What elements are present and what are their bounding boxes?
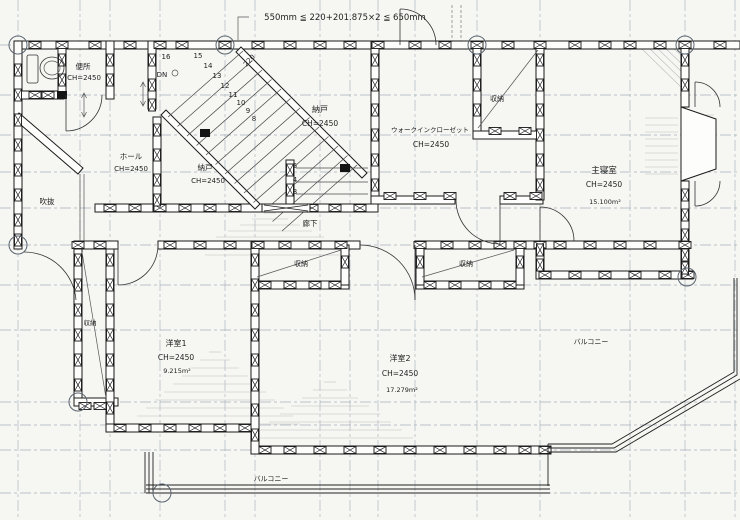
room-ch-hall: CH=2450 bbox=[114, 165, 148, 173]
room-label-balcony-bottom: バルコニー bbox=[254, 475, 289, 483]
wall-post bbox=[372, 154, 379, 166]
wall-post bbox=[56, 42, 68, 49]
wall-post bbox=[179, 205, 191, 212]
wall-post bbox=[107, 354, 114, 366]
wall-post bbox=[29, 42, 41, 49]
wall-post-solid bbox=[340, 164, 350, 172]
stair-step-number: 3 bbox=[293, 188, 297, 196]
wall-post bbox=[644, 242, 656, 249]
floor-plan-drawing: 550mm ≦ 220+201.875×2 ≦ 650mm 220 便所 CH=… bbox=[0, 0, 740, 520]
wall-post bbox=[314, 447, 326, 454]
wall-post bbox=[517, 256, 524, 268]
wall-post bbox=[599, 272, 611, 279]
room-ch-master-bedroom: CH=2450 bbox=[586, 180, 622, 189]
wall-post bbox=[614, 242, 626, 249]
wall-post bbox=[714, 42, 726, 49]
wall-post bbox=[89, 42, 101, 49]
wall-post bbox=[72, 242, 84, 249]
wall-post bbox=[569, 272, 581, 279]
wall-post bbox=[537, 104, 544, 116]
wall-post bbox=[344, 447, 356, 454]
stair-step-number: 11 bbox=[229, 91, 238, 99]
room-label-storage-left: 納戸 bbox=[198, 162, 213, 172]
wall-post bbox=[75, 279, 82, 291]
stair-step-number: 5 bbox=[293, 162, 297, 170]
wall-post bbox=[474, 79, 481, 91]
wall-post bbox=[309, 282, 321, 289]
stair-step-number: 15 bbox=[194, 52, 203, 60]
wall-post bbox=[107, 379, 114, 391]
wall-post bbox=[59, 54, 66, 66]
wall-post bbox=[502, 42, 514, 49]
room-label-balcony-right: バルコニー bbox=[574, 338, 609, 346]
wall-post bbox=[354, 205, 366, 212]
wall-post bbox=[514, 242, 526, 249]
wall-post bbox=[372, 104, 379, 116]
wall-post bbox=[494, 447, 506, 454]
wall-post bbox=[149, 54, 156, 66]
stair-step-number: 4 bbox=[293, 176, 298, 184]
stair-step-number: 16 bbox=[162, 53, 171, 61]
wall-post bbox=[537, 79, 544, 91]
stair-step-number: 12 bbox=[221, 82, 230, 90]
wall-post bbox=[154, 174, 161, 186]
wall-post bbox=[114, 425, 126, 432]
wall-post bbox=[252, 242, 264, 249]
wall-post bbox=[417, 256, 424, 268]
room-label-walk-in-closet: ウォークインクローゼット bbox=[391, 125, 469, 134]
wall-post bbox=[252, 429, 259, 441]
wall-post bbox=[107, 254, 114, 266]
wall-post bbox=[504, 282, 516, 289]
wall-post bbox=[139, 425, 151, 432]
wall-post bbox=[284, 282, 296, 289]
wall-post bbox=[629, 272, 641, 279]
wall-post bbox=[189, 425, 201, 432]
wall-post bbox=[154, 194, 161, 206]
wall-post bbox=[229, 205, 241, 212]
wall-post bbox=[519, 447, 531, 454]
room-ch-western-room-2: CH=2450 bbox=[382, 369, 418, 378]
wall-post bbox=[409, 42, 421, 49]
room-label-toilet: 便所 bbox=[76, 61, 91, 71]
wall-post bbox=[15, 114, 22, 126]
room-label-western-room-2: 洋室2 bbox=[389, 353, 410, 363]
wall-post bbox=[94, 403, 106, 410]
wall-post bbox=[682, 189, 689, 201]
wall-post-solid bbox=[200, 129, 210, 137]
room-label-master-bedroom: 主寝室 bbox=[591, 165, 617, 176]
wall-post bbox=[537, 259, 544, 271]
wall-post bbox=[444, 193, 456, 200]
sliding-door-symbol bbox=[262, 204, 310, 212]
wall-post bbox=[679, 242, 691, 249]
wall-post bbox=[15, 89, 22, 101]
wall-post bbox=[154, 124, 161, 136]
wall-post bbox=[75, 379, 82, 391]
wall-post bbox=[682, 54, 689, 66]
wall-post bbox=[129, 205, 141, 212]
wall-post bbox=[530, 193, 542, 200]
wall-post bbox=[59, 74, 66, 86]
wall-post bbox=[79, 403, 91, 410]
wall-post bbox=[107, 304, 114, 316]
wall-post bbox=[124, 42, 136, 49]
wall-post bbox=[329, 282, 341, 289]
wall-post bbox=[489, 128, 501, 135]
wall-post bbox=[176, 42, 188, 49]
stair-step-number: 14 bbox=[204, 62, 213, 70]
wall-post bbox=[464, 447, 476, 454]
wall-post bbox=[414, 193, 426, 200]
wall-post bbox=[372, 54, 379, 66]
room-label-storage-top: 納戸 bbox=[312, 104, 328, 114]
wall-post bbox=[239, 425, 251, 432]
room-ch-western-room-1: CH=2450 bbox=[158, 353, 194, 362]
wall-post bbox=[107, 54, 114, 66]
room-label-closet-corridor-left: 収納 bbox=[294, 259, 308, 268]
wall-post bbox=[659, 272, 671, 279]
wall-post bbox=[682, 79, 689, 91]
wall-post bbox=[584, 242, 596, 249]
wall-post bbox=[682, 209, 689, 221]
wall-post bbox=[434, 447, 446, 454]
stair-step-number: 8 bbox=[252, 115, 256, 123]
stair-step-number: 9 bbox=[246, 107, 250, 115]
wall-post bbox=[404, 447, 416, 454]
wall-post bbox=[154, 42, 166, 49]
wall-post bbox=[344, 42, 356, 49]
wall-post bbox=[252, 329, 259, 341]
wall-post bbox=[329, 205, 341, 212]
wall-post bbox=[94, 242, 106, 249]
wall-post bbox=[682, 229, 689, 241]
wall-post bbox=[252, 304, 259, 316]
wall-post bbox=[252, 404, 259, 416]
wall-post bbox=[537, 154, 544, 166]
wall-post bbox=[314, 42, 326, 49]
wall-post bbox=[374, 447, 386, 454]
stair-dn-label: DN bbox=[157, 71, 168, 79]
wall-post bbox=[335, 242, 347, 249]
wall-post bbox=[164, 425, 176, 432]
wall-post bbox=[252, 254, 259, 266]
wall-post bbox=[29, 92, 41, 99]
wall-post bbox=[537, 129, 544, 141]
wall-post bbox=[384, 193, 396, 200]
wall-post bbox=[414, 242, 426, 249]
wall-post bbox=[204, 205, 216, 212]
room-label-closet-west: 収納 bbox=[84, 318, 97, 327]
room-ch-walk-in-closet: CH=2450 bbox=[413, 140, 449, 149]
wall-post bbox=[599, 42, 611, 49]
wall-post bbox=[279, 242, 291, 249]
wall-post bbox=[309, 242, 321, 249]
wall-post bbox=[441, 242, 453, 249]
wall-post bbox=[474, 54, 481, 66]
wall-post bbox=[107, 279, 114, 291]
wall-post bbox=[224, 242, 236, 249]
wall-post bbox=[539, 272, 551, 279]
wall-post bbox=[252, 379, 259, 391]
stair-step-number: 13 bbox=[213, 72, 222, 80]
wall-post bbox=[372, 42, 384, 49]
wall-post bbox=[252, 279, 259, 291]
room-area-western-room-2: 17.279m² bbox=[386, 386, 418, 394]
wall-post bbox=[154, 149, 161, 161]
bay-window bbox=[681, 107, 716, 181]
wall-post bbox=[537, 54, 544, 66]
wall-post bbox=[107, 329, 114, 341]
room-label-corridor: 廊下 bbox=[303, 218, 318, 228]
wall-post bbox=[474, 104, 481, 116]
wall-post bbox=[104, 205, 116, 212]
wall-post bbox=[75, 329, 82, 341]
wall-post bbox=[75, 354, 82, 366]
wall-post bbox=[107, 402, 114, 414]
wall-post bbox=[569, 42, 581, 49]
wall-post bbox=[284, 42, 296, 49]
wall-post bbox=[164, 242, 176, 249]
room-label-hall: ホール bbox=[120, 152, 143, 161]
room-ch-toilet: CH=2450 bbox=[67, 74, 101, 82]
wall-post bbox=[15, 139, 22, 151]
wall-post bbox=[149, 79, 156, 91]
wall-post bbox=[469, 242, 481, 249]
wall-post bbox=[75, 254, 82, 266]
wall-post bbox=[504, 193, 516, 200]
wall-post bbox=[219, 42, 231, 49]
wall-post bbox=[439, 42, 451, 49]
wall-post bbox=[15, 64, 22, 76]
wall-post bbox=[342, 256, 349, 268]
room-label-closet-corridor-right: 収納 bbox=[459, 259, 473, 268]
wall-post bbox=[519, 128, 531, 135]
wall-post bbox=[107, 74, 114, 86]
wall-post bbox=[149, 99, 156, 111]
floor-plan-page: 550mm ≦ 220+201.875×2 ≦ 650mm 220 便所 CH=… bbox=[0, 0, 740, 520]
wall-post bbox=[15, 189, 22, 201]
wall-post bbox=[372, 129, 379, 141]
wall-post bbox=[252, 42, 264, 49]
stair-step-number: 10 bbox=[237, 99, 246, 107]
wall-post bbox=[214, 425, 226, 432]
wall-post bbox=[252, 354, 259, 366]
wall-post bbox=[471, 42, 483, 49]
wall-post bbox=[624, 42, 636, 49]
wall-post bbox=[679, 42, 691, 49]
room-area-master-bedroom: 15.100m² bbox=[589, 198, 621, 206]
wall-post bbox=[372, 179, 379, 191]
wall-post bbox=[654, 42, 666, 49]
wall-post bbox=[15, 164, 22, 176]
room-ch-storage-left: CH=2450 bbox=[191, 177, 225, 185]
top-dimension-annotation: 550mm ≦ 220+201.875×2 ≦ 650mm bbox=[264, 13, 426, 23]
wall-post bbox=[372, 79, 379, 91]
wall-post bbox=[479, 282, 491, 289]
room-area-western-room-1: 9.215m² bbox=[163, 367, 191, 375]
wall-post bbox=[424, 282, 436, 289]
wall-post bbox=[75, 304, 82, 316]
wall-post bbox=[554, 242, 566, 249]
wall-post bbox=[682, 249, 689, 261]
wall-post bbox=[537, 179, 544, 191]
room-label-closet-wic: 収納 bbox=[490, 94, 504, 103]
wall-post bbox=[42, 92, 54, 99]
room-label-void: 吹抜 bbox=[40, 196, 55, 206]
wall-post bbox=[194, 242, 206, 249]
room-label-western-room-1: 洋室1 bbox=[165, 338, 186, 348]
wall-post bbox=[537, 244, 544, 256]
wall-post bbox=[284, 447, 296, 454]
wall-post bbox=[259, 447, 271, 454]
wall-post bbox=[449, 282, 461, 289]
room-ch-storage-top: CH=2450 bbox=[302, 119, 338, 128]
wall-post bbox=[534, 42, 546, 49]
wall-post bbox=[259, 282, 271, 289]
wall-post bbox=[15, 214, 22, 226]
wall-post-solid bbox=[57, 91, 67, 99]
